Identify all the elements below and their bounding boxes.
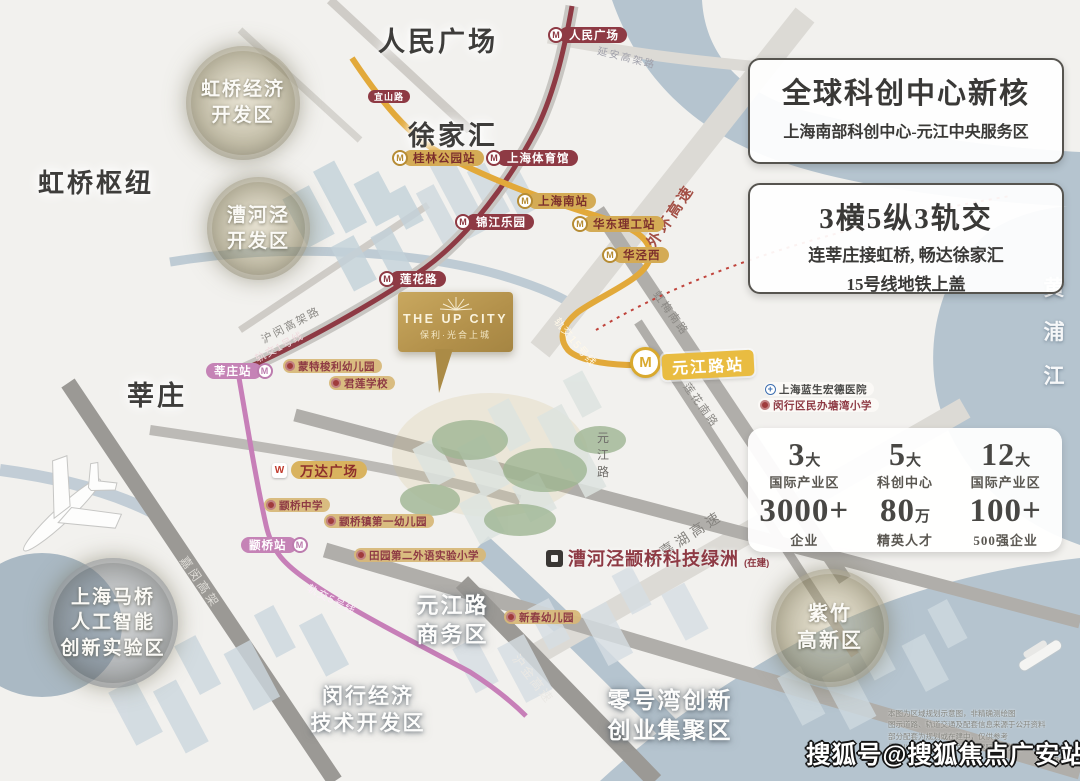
road-label-yuanjiang-road: 元江路 (596, 430, 610, 480)
station-badge-guilin-park: M 桂林公园站 (392, 150, 484, 166)
school-icon (760, 400, 770, 410)
station-badge-shanghai-stadium: M 上海体育馆 (486, 150, 578, 166)
stat-number: 3 (788, 436, 805, 472)
stat-label: 企业 (754, 530, 855, 549)
station-label: 桂林公园站 (403, 150, 484, 166)
station-badge-ecust: M 华东理工站 (572, 216, 664, 232)
area-label-minhang-dev: 闵行经济 技术开发区 (283, 683, 453, 738)
tech-park-icon (546, 550, 563, 567)
district-label: 开发区 (227, 229, 290, 255)
station-label: 颛桥站 (241, 537, 297, 553)
stat-intl-zones: 12大 国际产业区 (955, 438, 1056, 491)
area-label-line: 闵行经济 (283, 683, 453, 710)
school-icon (266, 500, 276, 510)
poi-label-suffix: (在建) (744, 555, 769, 569)
poi-label: 上海蓝生宏德医院 (779, 382, 867, 397)
district-label: 创新实验区 (60, 636, 165, 662)
poi-label: 万达广场 (291, 461, 367, 479)
project-logo-pointer (435, 349, 453, 393)
stat-label: 精英人才 (855, 530, 956, 549)
metro-icon: M (572, 216, 588, 232)
district-label: 紫竹 (808, 601, 852, 628)
disclaimer-line: 本图为区域规划示意图，非精确测绘图 (888, 708, 1074, 719)
area-label-hongqiao-hub: 虹桥枢纽 (38, 163, 154, 200)
area-label-xinzhuang: 莘庄 (127, 374, 187, 413)
wanda-icon: W (272, 463, 287, 478)
info-subtitle: 上海南部科创中心-元江中央服务区 (750, 118, 1062, 142)
stat-tech-centers: 5大 科创中心 (855, 438, 956, 491)
poi-badge-zhuanqiao-kindergarten: 颛桥镇第一幼儿园 (324, 514, 434, 528)
metro-icon: M (379, 271, 395, 287)
area-label-line: 元江路 (390, 592, 515, 621)
stat-number: 80 (880, 493, 915, 529)
station-badge-shanghai-south: M 上海南站 (517, 193, 596, 209)
stat-label: 500强企业 (955, 530, 1056, 549)
poi-badge-zhuanqiao-middle-school: 颛桥中学 (264, 498, 330, 512)
station-badge-lianhua-road: M 莲花路 (379, 271, 446, 287)
area-label-line: 创业集聚区 (570, 716, 770, 746)
metro-icon-yuanjiang: M (630, 347, 661, 378)
area-label-yuanjiang-biz: 元江路 商务区 (390, 592, 515, 649)
stat-unit: 大 (805, 453, 820, 469)
poi-label: 新春幼儿园 (519, 610, 574, 625)
promo-map: 虹桥经济 开发区 漕河泾 开发区 上海马桥 人工智能 创新实验区 紫竹 高新区 … (0, 0, 1080, 781)
district-circle-zizhu: 紫竹 高新区 (771, 569, 889, 687)
info-line: 连莘庄接虹桥, 畅达徐家汇 (750, 241, 1062, 266)
district-label: 人工智能 (71, 610, 155, 636)
stat-label: 科创中心 (855, 472, 956, 491)
station-label: 上海南站 (528, 193, 596, 209)
district-label: 高新区 (797, 628, 863, 655)
district-circle-caohejing: 漕河泾 开发区 (207, 177, 310, 280)
poi-badge-tangwan-primary: 闵行区民办塘湾小学 (758, 398, 879, 412)
poi-badge-montessori-kindergarten: 蒙特梭利幼儿园 (283, 359, 382, 373)
school-icon (356, 550, 366, 560)
area-label-line: 技术开发区 (283, 710, 453, 737)
project-logo: THE UP CITY 保利·光合上城 (398, 292, 513, 352)
stat-number: 3000+ (759, 493, 849, 529)
stat-label: 国际产业区 (955, 472, 1056, 491)
stat-number: 5 (889, 436, 906, 472)
poi-badge-tianyuan-primary: 田园第二外语实验小学 (354, 548, 486, 562)
poi-label: 颛桥中学 (279, 498, 323, 513)
station-badge-zhuanqiao: 颛桥站 M (241, 537, 308, 553)
area-label-xujiahui: 徐家汇 (408, 114, 498, 153)
school-icon (326, 516, 336, 526)
station-label: 莲花路 (390, 271, 446, 287)
poi-label: 闵行区民办塘湾小学 (773, 398, 872, 413)
station-badge-huajing-west: M 华泾西 (602, 247, 669, 263)
area-label-renmin-square: 人民广场 (378, 20, 498, 59)
watermark-sohu: 搜狐号@搜狐焦点广安站 (806, 736, 1080, 771)
district-label: 虹桥经济 (201, 77, 285, 103)
info-line: 15号线地铁上盖 (750, 270, 1062, 295)
metro-icon: M (392, 150, 408, 166)
stats-box: 3大 国际产业区 5大 科创中心 12大 国际产业区 3000+ 企业 80万 … (748, 428, 1062, 552)
district-circle-maqiao: 上海马桥 人工智能 创新实验区 (48, 558, 178, 688)
project-name-cn: 保利·光合上城 (398, 328, 513, 341)
poi-label: 颛桥镇第一幼儿园 (339, 514, 427, 529)
info-box-transport: 3横5纵3轨交 连莘庄接虹桥, 畅达徐家汇 15号线地铁上盖 (748, 183, 1064, 294)
stat-talents: 80万 精英人才 (855, 495, 956, 549)
station-badge-jinjiang-park: M 锦江乐园 (455, 214, 534, 230)
info-title: 3横5纵3轨交 (750, 195, 1062, 237)
station-label: 宜山路 (368, 90, 410, 103)
station-label: 莘庄站 (206, 363, 262, 379)
school-icon (285, 361, 295, 371)
station-badge-yuanjiang-road: 元江路站 (661, 350, 754, 381)
disclaimer-line: 图示道路、轨道交通及配套信息来源于公开资料 (888, 719, 1074, 730)
stat-number: 100+ (970, 493, 1042, 529)
area-label-lhw: 零号湾创新 创业集聚区 (570, 686, 770, 746)
district-circle-hongqiao-edz: 虹桥经济 开发区 (186, 46, 300, 160)
sunburst-icon (439, 296, 473, 311)
district-label: 上海马桥 (71, 585, 155, 611)
stat-label: 国际产业区 (754, 472, 855, 491)
stat-unit: 万 (915, 509, 930, 525)
station-label: 华泾西 (613, 247, 669, 263)
metro-icon: M (257, 363, 273, 379)
metro-icon: M (517, 193, 533, 209)
station-label: 华东理工站 (583, 216, 664, 232)
poi-badge-hospital: + 上海蓝生宏德医院 (764, 382, 874, 396)
hospital-icon: + (765, 384, 776, 395)
district-label: 开发区 (211, 103, 274, 129)
school-icon (506, 612, 516, 622)
poi-badge-caohejing-oasis: 漕河泾颛桥科技绿洲 (在建) (546, 545, 769, 571)
metro-icon: M (455, 214, 471, 230)
poi-badge-xinchun-kindergarten: 新春幼儿园 (504, 610, 581, 624)
stat-fortune500: 100+ 500强企业 (955, 495, 1056, 549)
stat-unit: 大 (1015, 453, 1030, 469)
poi-badge-junlian-school: 君莲学校 (329, 376, 395, 390)
poi-label: 蒙特梭利幼儿园 (298, 359, 375, 374)
area-label-line: 商务区 (390, 621, 515, 650)
project-name-en: THE UP CITY (398, 312, 513, 326)
station-badge-renmin: M 人民广场 (548, 27, 627, 43)
station-label: 上海体育馆 (497, 150, 578, 166)
stat-number: 12 (981, 436, 1015, 472)
station-label: 人民广场 (559, 27, 627, 43)
poi-label: 田园第二外语实验小学 (369, 548, 479, 563)
school-icon (331, 378, 341, 388)
area-label-line: 零号湾创新 (570, 686, 770, 716)
info-box-headline: 全球科创中心新核 上海南部科创中心-元江中央服务区 (748, 58, 1064, 164)
stat-enterprises: 3000+ 企业 (754, 495, 855, 549)
stat-industrial-zones: 3大 国际产业区 (754, 438, 855, 491)
metro-icon: M (548, 27, 564, 43)
station-badge-xinzhuang: 莘庄站 M (206, 363, 273, 379)
metro-icon: M (486, 150, 502, 166)
metro-icon: M (602, 247, 618, 263)
district-label: 漕河泾 (227, 203, 290, 229)
stat-unit: 大 (906, 453, 921, 469)
info-title: 全球科创中心新核 (750, 70, 1062, 112)
station-badge-yishan: 宜山路 (368, 90, 410, 103)
poi-label: 君莲学校 (344, 376, 388, 391)
poi-label: 漕河泾颛桥科技绿洲 (568, 545, 739, 571)
metro-icon: M (292, 537, 308, 553)
poi-badge-wanda-plaza: W 万达广场 (272, 461, 367, 479)
station-label: 锦江乐园 (466, 214, 534, 230)
